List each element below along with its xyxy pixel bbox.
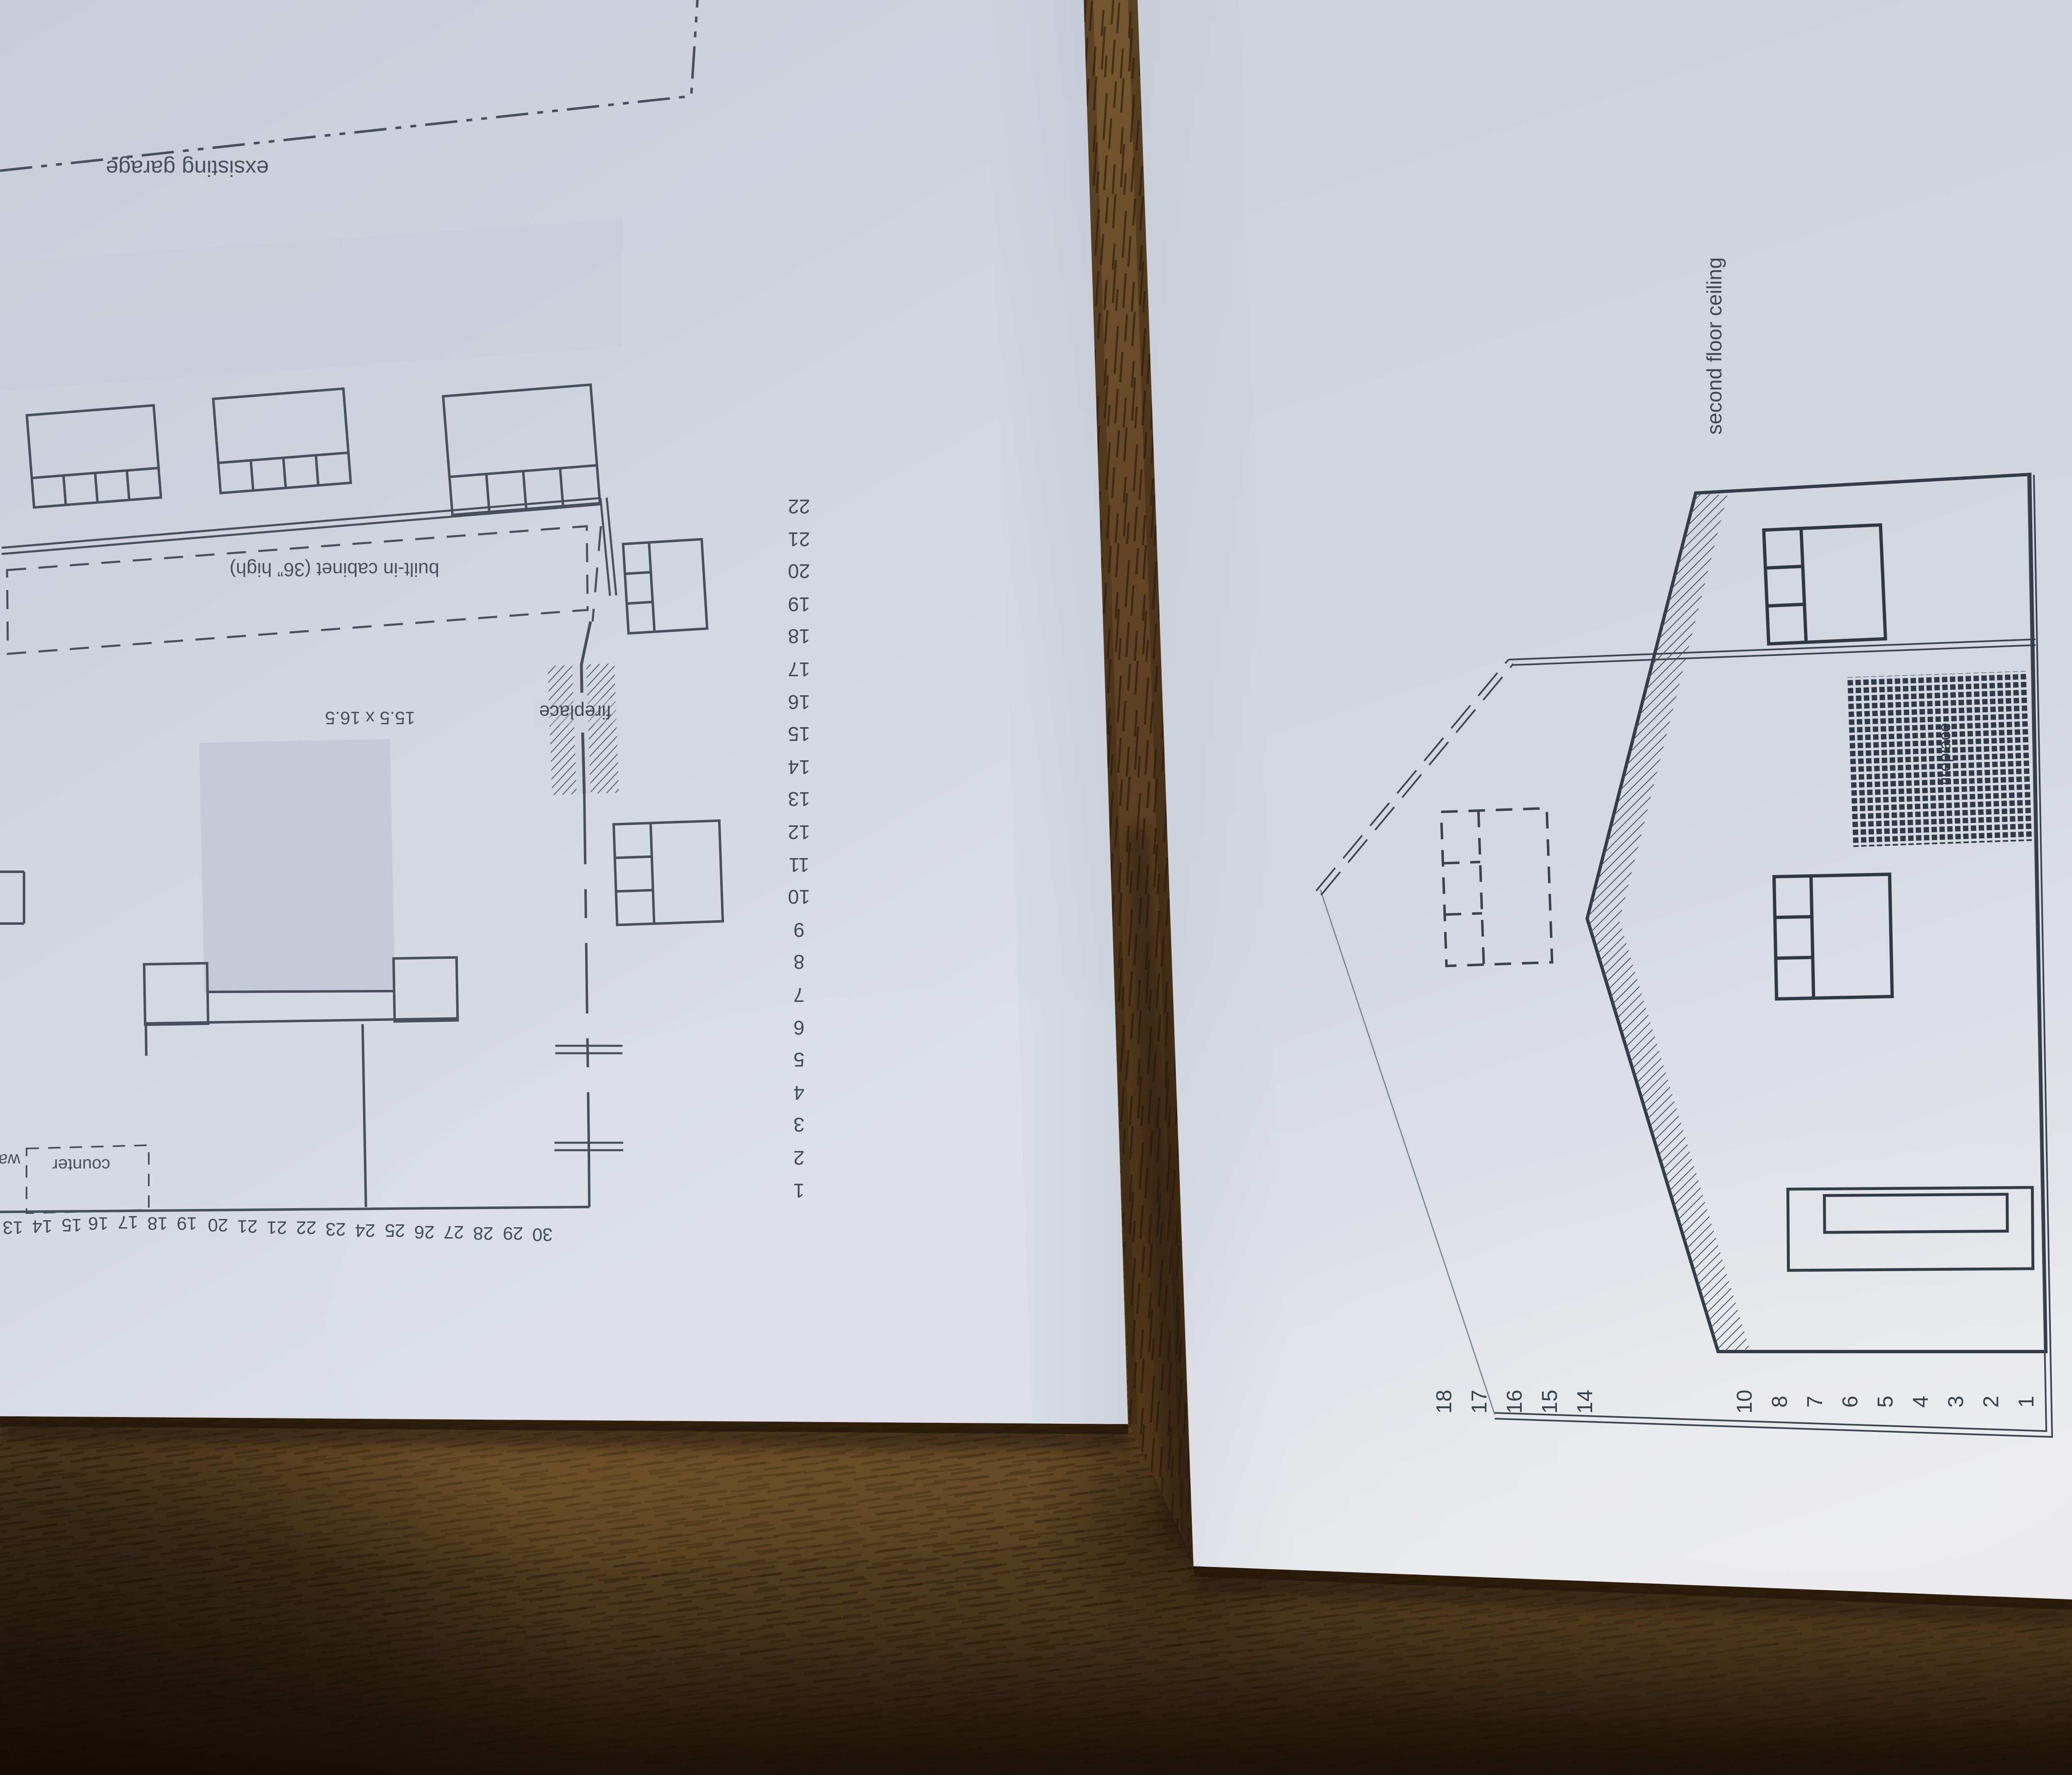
svg-text:17: 17 <box>788 658 810 680</box>
svg-text:counter: counter <box>52 1156 110 1175</box>
svg-text:22: 22 <box>788 495 810 517</box>
svg-text:15: 15 <box>1538 1390 1562 1414</box>
svg-text:14: 14 <box>32 1216 53 1236</box>
svg-text:4: 4 <box>1909 1396 1933 1408</box>
svg-text:12: 12 <box>788 821 810 843</box>
svg-text:16: 16 <box>88 1213 109 1233</box>
svg-text:second floor ceiling: second floor ceiling <box>1703 257 1726 435</box>
svg-text:wa: wa <box>0 1151 21 1170</box>
svg-text:26: 26 <box>414 1222 435 1242</box>
svg-text:21: 21 <box>788 528 810 550</box>
svg-text:7: 7 <box>1803 1396 1827 1408</box>
svg-text:15: 15 <box>62 1215 82 1235</box>
svg-text:13: 13 <box>788 788 810 810</box>
svg-text:2: 2 <box>794 1146 805 1168</box>
svg-text:fireplace: fireplace <box>1936 723 1954 785</box>
svg-text:8: 8 <box>794 950 805 972</box>
svg-text:24: 24 <box>355 1220 375 1241</box>
svg-text:10: 10 <box>788 885 810 907</box>
svg-text:5: 5 <box>794 1048 805 1070</box>
svg-text:23: 23 <box>326 1219 346 1239</box>
svg-text:built-in cabinet (36” high): built-in cabinet (36” high) <box>230 559 439 580</box>
svg-text:18: 18 <box>788 625 810 647</box>
svg-text:18: 18 <box>1432 1390 1456 1414</box>
svg-text:14: 14 <box>1573 1390 1597 1414</box>
svg-text:18: 18 <box>148 1213 168 1233</box>
svg-text:22: 22 <box>296 1217 317 1238</box>
svg-text:25: 25 <box>385 1220 405 1241</box>
svg-text:15.5 x 16.5: 15.5 x 16.5 <box>325 708 415 728</box>
svg-text:19: 19 <box>788 593 810 615</box>
svg-text:5: 5 <box>1874 1396 1898 1408</box>
svg-text:19: 19 <box>177 1213 197 1233</box>
svg-text:16: 16 <box>788 691 810 713</box>
svg-text:exsisting garage: exsisting garage <box>106 156 269 181</box>
svg-text:21: 21 <box>267 1217 287 1238</box>
svg-text:21: 21 <box>237 1216 258 1236</box>
svg-text:13: 13 <box>3 1217 23 1238</box>
svg-text:fireplace: fireplace <box>539 701 611 723</box>
svg-text:28: 28 <box>473 1223 494 1243</box>
svg-text:17: 17 <box>1467 1390 1491 1414</box>
svg-text:20: 20 <box>788 560 810 582</box>
svg-text:6: 6 <box>794 1016 805 1038</box>
svg-text:30: 30 <box>533 1224 553 1245</box>
svg-text:3: 3 <box>1944 1396 1968 1408</box>
svg-text:11: 11 <box>789 854 809 875</box>
svg-text:1: 1 <box>2014 1396 2038 1408</box>
svg-text:27: 27 <box>444 1222 464 1242</box>
svg-text:14: 14 <box>788 756 810 778</box>
svg-text:15: 15 <box>788 723 810 745</box>
svg-text:3: 3 <box>794 1113 805 1135</box>
svg-text:16: 16 <box>1503 1390 1527 1414</box>
svg-text:4: 4 <box>794 1081 805 1103</box>
svg-text:10: 10 <box>1733 1390 1757 1414</box>
svg-text:6: 6 <box>1838 1396 1862 1408</box>
svg-text:9: 9 <box>794 919 805 941</box>
svg-text:7: 7 <box>794 984 805 1006</box>
svg-text:17: 17 <box>118 1212 138 1232</box>
svg-text:8: 8 <box>1768 1396 1792 1408</box>
svg-text:1: 1 <box>794 1179 805 1201</box>
svg-text:20: 20 <box>208 1215 228 1235</box>
svg-text:29: 29 <box>503 1223 523 1243</box>
svg-text:2: 2 <box>1979 1396 2003 1408</box>
